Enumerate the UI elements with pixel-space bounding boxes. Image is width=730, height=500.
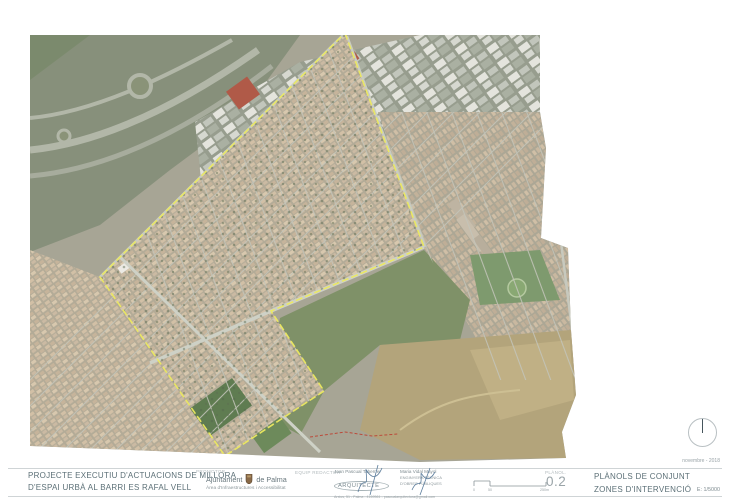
aerial-photo (0, 0, 730, 466)
promotor-org-name1: Ajuntament (206, 475, 242, 484)
promotor-dept: Àrea d'Infraestructures i Accessibilitat (206, 486, 286, 491)
planol-number: 0.2 (546, 474, 566, 489)
promotor-org-name2: de Palma (256, 475, 286, 484)
aerial-photo-layers (0, 10, 709, 466)
scale-bar: 0 50 250m (472, 477, 552, 495)
scale-tick-50: 50 (488, 488, 492, 492)
sheet-scale: E: 1/5000 (660, 487, 720, 493)
signature-1 (352, 464, 388, 496)
aerial-photo-svg (0, 0, 730, 466)
signature-2 (408, 466, 440, 496)
palma-coat-of-arms-icon (245, 474, 253, 484)
project-title-line2: D'ESPAI URBÀ AL BARRI ES RAFAL VELL (28, 482, 236, 494)
north-needle (702, 419, 704, 433)
sheet-title-line1: PLÀNOLS DE CONJUNT (594, 471, 691, 484)
sheet-date: novembre - 2018 (682, 458, 720, 464)
scale-tick-0: 0 (473, 488, 475, 492)
plan-sheet: novembre - 2018 PROJECTE EXECUTIU D'ACTU… (0, 0, 730, 500)
north-arrow-icon (688, 418, 717, 447)
promotor-org: Ajuntament de Palma (206, 474, 287, 484)
